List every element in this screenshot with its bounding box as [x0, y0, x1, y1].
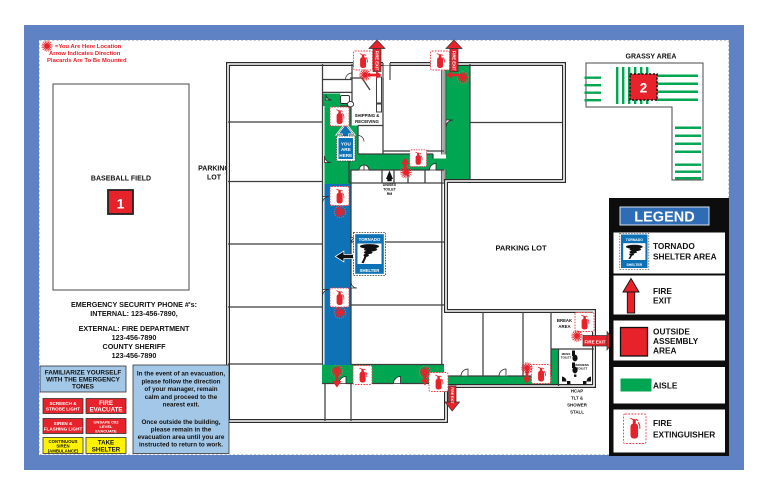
svg-text:123-456-7890: 123-456-7890 [112, 351, 157, 360]
svg-text:GRASSY AREA: GRASSY AREA [626, 54, 677, 61]
svg-text:STALL: STALL [570, 410, 584, 415]
svg-text:In the event of an evacuation,: In the event of an evacuation, [137, 371, 225, 378]
svg-text:2: 2 [640, 81, 648, 96]
svg-text:RM: RM [387, 192, 393, 196]
svg-text:EVACUATE: EVACUATE [89, 407, 122, 414]
svg-text:WITH THE EMERGENCY: WITH THE EMERGENCY [46, 377, 121, 384]
svg-text:1: 1 [117, 197, 125, 212]
svg-text:SHOWER: SHOWER [567, 403, 588, 408]
svg-text:Arrow Indicates Direction: Arrow Indicates Direction [49, 51, 121, 57]
svg-text:HERE: HERE [339, 153, 352, 158]
svg-text:SHELTER: SHELTER [92, 447, 121, 454]
svg-text:EXTERNAL: FIRE DEPARTMENT: EXTERNAL: FIRE DEPARTMENT [79, 324, 190, 333]
svg-text:FIRE EXIT: FIRE EXIT [585, 340, 606, 345]
svg-text:FIRE: FIRE [653, 418, 672, 428]
svg-text:SHELTER AREA: SHELTER AREA [653, 251, 717, 261]
svg-text:INTERNAL: 123-456-7890,: INTERNAL: 123-456-7890, [90, 309, 177, 318]
svg-text:Placards Are To Be Mounted: Placards Are To Be Mounted [47, 58, 127, 64]
svg-text:EMERGENCY SECURITY PHONE #'s:: EMERGENCY SECURITY PHONE #'s: [71, 300, 197, 309]
svg-text:please follow the direction: please follow the direction [141, 378, 220, 385]
svg-text:=You Are Here Location: =You Are Here Location [55, 44, 122, 50]
svg-text:BASEBALL FIELD: BASEBALL FIELD [91, 176, 151, 183]
svg-text:TLT &: TLT & [571, 396, 584, 401]
svg-text:FAMILIARIZE YOURSELF: FAMILIARIZE YOURSELF [45, 370, 122, 377]
svg-text:AREA: AREA [558, 324, 570, 329]
svg-text:SHELTER: SHELTER [627, 263, 643, 267]
svg-text:instructed to return to work.: instructed to return to work. [139, 442, 223, 449]
svg-text:please remain in the: please remain in the [151, 427, 212, 434]
svg-text:calm and proceed to the: calm and proceed to the [145, 394, 218, 401]
svg-text:SIREN &: SIREN & [54, 421, 73, 426]
svg-text:nearest exit.: nearest exit. [163, 402, 200, 409]
svg-text:of your manager, remain: of your manager, remain [144, 386, 217, 393]
svg-text:evacuation area until you are: evacuation area until you are [138, 434, 225, 441]
svg-text:UNISEX: UNISEX [383, 183, 397, 187]
svg-text:SHELTER: SHELTER [360, 268, 381, 273]
svg-text:SCREECH &: SCREECH & [49, 401, 77, 406]
svg-text:LEGEND: LEGEND [634, 210, 694, 226]
svg-text:ARE: ARE [341, 147, 351, 152]
svg-text:Once outside the building,: Once outside the building, [141, 419, 220, 426]
svg-text:TORNADO: TORNADO [626, 238, 643, 242]
svg-text:(AMBULANCE): (AMBULANCE) [48, 448, 79, 453]
svg-text:ASSEMBLY: ASSEMBLY [653, 336, 699, 346]
svg-text:TOILET: TOILET [561, 356, 572, 360]
svg-text:FIRE: FIRE [653, 286, 672, 296]
svg-text:EVACUATE: EVACUATE [95, 429, 117, 434]
svg-text:TAKE: TAKE [98, 440, 114, 447]
svg-text:TONES: TONES [72, 384, 95, 391]
svg-text:AREA: AREA [653, 346, 677, 356]
svg-text:FIRE EXIT: FIRE EXIT [374, 51, 379, 71]
svg-text:TOILET: TOILET [383, 188, 397, 192]
svg-text:PARKING LOT: PARKING LOT [495, 244, 547, 253]
svg-text:PARKING: PARKING [198, 166, 230, 173]
svg-text:TOILET: TOILET [577, 367, 588, 371]
svg-text:TORNADO: TORNADO [653, 241, 695, 251]
svg-text:OUTSIDE: OUTSIDE [653, 327, 690, 337]
svg-text:FIRE EXIT: FIRE EXIT [450, 387, 454, 404]
svg-text:YOU: YOU [341, 142, 352, 147]
svg-text:FLASHING LIGHT: FLASHING LIGHT [44, 426, 83, 431]
svg-text:COUNTY SHERIFF: COUNTY SHERIFF [103, 342, 167, 351]
svg-text:RECEIVING: RECEIVING [355, 119, 379, 124]
svg-text:AISLE: AISLE [653, 381, 678, 391]
svg-text:STROBE LIGHT: STROBE LIGHT [46, 406, 80, 411]
svg-text:TORNADO: TORNADO [359, 237, 381, 242]
svg-text:123-456-7890: 123-456-7890 [112, 333, 157, 342]
svg-text:BREAK: BREAK [557, 318, 573, 323]
svg-text:HCAP: HCAP [571, 389, 584, 394]
svg-text:LOT: LOT [207, 175, 222, 182]
svg-text:EXTINGUISHER: EXTINGUISHER [653, 430, 715, 440]
svg-text:EXIT: EXIT [653, 296, 671, 306]
svg-text:FIRE EXIT: FIRE EXIT [451, 51, 456, 71]
svg-text:SHIPPING &: SHIPPING & [355, 113, 380, 118]
